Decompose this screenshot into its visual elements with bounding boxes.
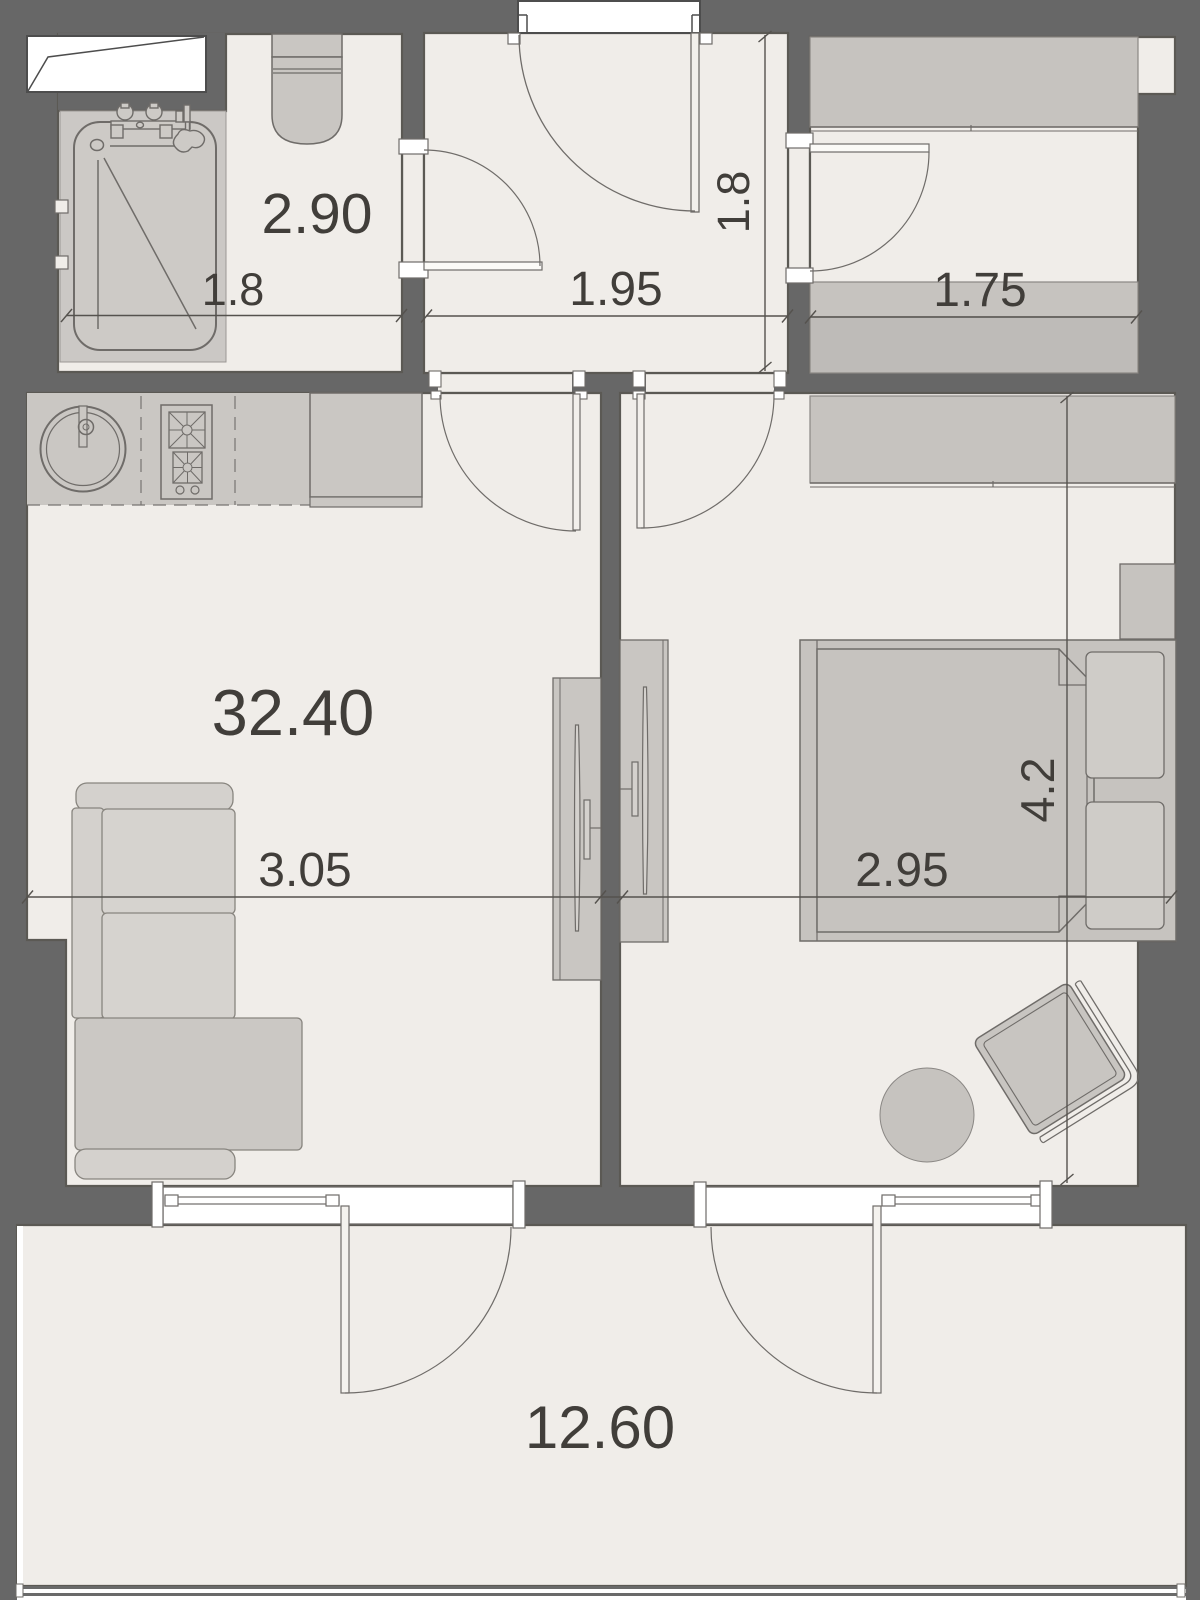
svg-text:2.90: 2.90	[262, 182, 373, 246]
svg-text:32.40: 32.40	[212, 676, 375, 749]
svg-text:1.8: 1.8	[708, 171, 759, 234]
svg-text:4.2: 4.2	[1011, 757, 1064, 822]
svg-text:2.95: 2.95	[855, 844, 948, 897]
svg-text:12.60: 12.60	[525, 1394, 675, 1461]
svg-text:1.95: 1.95	[569, 263, 662, 316]
svg-text:3.05: 3.05	[258, 844, 351, 897]
svg-text:1.75: 1.75	[933, 264, 1026, 317]
svg-text:1.8: 1.8	[202, 264, 265, 315]
